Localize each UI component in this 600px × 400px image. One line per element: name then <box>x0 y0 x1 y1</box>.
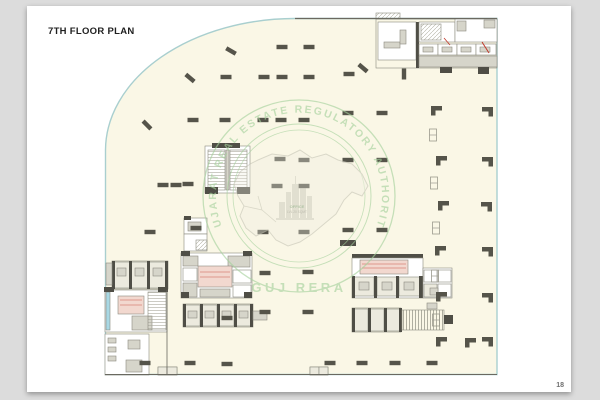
center-label-line1: OFFICE <box>290 204 305 209</box>
plan-room <box>228 256 250 267</box>
plan-room <box>352 276 355 298</box>
plan-room <box>200 289 230 297</box>
plan-column <box>259 75 270 79</box>
plan-column <box>325 361 336 365</box>
plan-room <box>480 47 490 52</box>
plan-room <box>457 21 466 31</box>
plan-column <box>191 226 202 230</box>
plan-column <box>357 361 368 365</box>
plan-room <box>233 270 251 283</box>
plan-column <box>343 228 354 232</box>
plan-column <box>402 69 406 80</box>
plan-room <box>129 261 132 289</box>
plan-room <box>384 308 387 332</box>
plan-column <box>377 111 388 115</box>
plan-room <box>200 304 203 327</box>
plan-column <box>145 230 156 234</box>
plan-room <box>310 367 319 375</box>
floor-plan-drawing: GUJARAT REAL ESTATE REGULATORY AUTHORITY… <box>0 0 600 400</box>
page-number: 18 <box>556 382 564 389</box>
plan-room <box>158 287 168 292</box>
plan-column <box>188 118 199 122</box>
plan-column <box>299 118 310 122</box>
plan-room <box>117 268 126 276</box>
plan-column <box>303 270 314 274</box>
plan-room <box>128 340 140 349</box>
plan-column <box>183 182 194 186</box>
plan-room <box>196 240 207 250</box>
plan-column <box>140 361 151 365</box>
plan-room <box>181 292 189 298</box>
plan-room <box>385 309 400 331</box>
plan-room <box>419 276 423 298</box>
plan-column <box>304 45 315 49</box>
plan-room <box>183 256 198 266</box>
plan-room <box>438 270 451 282</box>
plan-room <box>374 276 377 298</box>
plan-room <box>416 22 419 68</box>
plan-room <box>198 266 232 287</box>
plan-room <box>399 308 402 332</box>
plan-room <box>183 304 186 327</box>
plan-room <box>184 216 191 220</box>
plan-room <box>384 42 400 48</box>
plan-room <box>444 315 453 324</box>
plan-room <box>234 304 237 327</box>
plan-column <box>171 183 182 187</box>
plan-room <box>319 367 328 375</box>
plan-room <box>400 30 406 44</box>
plan-room <box>205 311 214 318</box>
plan-room <box>360 260 408 274</box>
plan-room <box>419 56 497 67</box>
plan-column <box>260 271 271 275</box>
plan-room <box>188 311 197 318</box>
plan-column <box>277 45 288 49</box>
plan-room <box>165 261 168 289</box>
plan-room <box>440 67 452 73</box>
plan-room <box>148 292 166 330</box>
plan-room <box>183 268 197 281</box>
plan-room <box>181 251 190 256</box>
plan-column <box>222 362 233 366</box>
plan-column <box>158 183 169 187</box>
plan-room <box>359 282 369 290</box>
plan-room <box>167 367 177 375</box>
plan-room <box>106 292 110 330</box>
plan-room <box>396 276 399 298</box>
plan-column <box>260 310 271 314</box>
plan-room <box>382 282 392 290</box>
plan-room <box>104 287 114 292</box>
plan-column <box>220 118 231 122</box>
plan-room <box>112 261 115 289</box>
plan-room <box>108 338 116 343</box>
plan-room <box>239 311 248 318</box>
plan-column <box>304 75 315 79</box>
plan-column <box>303 310 314 314</box>
plan-room <box>423 47 433 52</box>
plan-room <box>158 367 167 375</box>
plan-room <box>427 303 437 309</box>
plan-room <box>421 24 441 40</box>
plan-room <box>147 261 150 289</box>
plan-column <box>222 316 233 320</box>
plan-column <box>277 75 288 79</box>
stamp-bottom-text: GUJ RERA <box>251 280 346 295</box>
plan-room <box>135 268 144 276</box>
plan-room <box>369 309 384 331</box>
plan-room <box>368 308 371 332</box>
plan-room <box>352 308 355 332</box>
plan-column <box>221 75 232 79</box>
plan-column <box>390 361 401 365</box>
plan-room <box>353 309 368 331</box>
plan-room <box>352 254 423 258</box>
plan-room <box>478 67 489 74</box>
plan-room <box>153 268 162 276</box>
plan-room <box>404 282 414 290</box>
plan-room <box>461 47 471 52</box>
plan-room <box>108 356 116 361</box>
plan-column <box>185 361 196 365</box>
plan-room <box>108 347 116 352</box>
plan-room <box>243 251 252 256</box>
plan-room <box>442 47 452 52</box>
plan-column <box>427 361 438 365</box>
center-label-line2: LVL 20 SQMT <box>287 210 307 214</box>
plan-room <box>378 22 416 60</box>
plan-room <box>106 263 112 285</box>
plan-room <box>484 20 495 28</box>
plan-room <box>250 304 253 327</box>
plan-column <box>344 72 355 76</box>
plan-room <box>217 304 220 327</box>
